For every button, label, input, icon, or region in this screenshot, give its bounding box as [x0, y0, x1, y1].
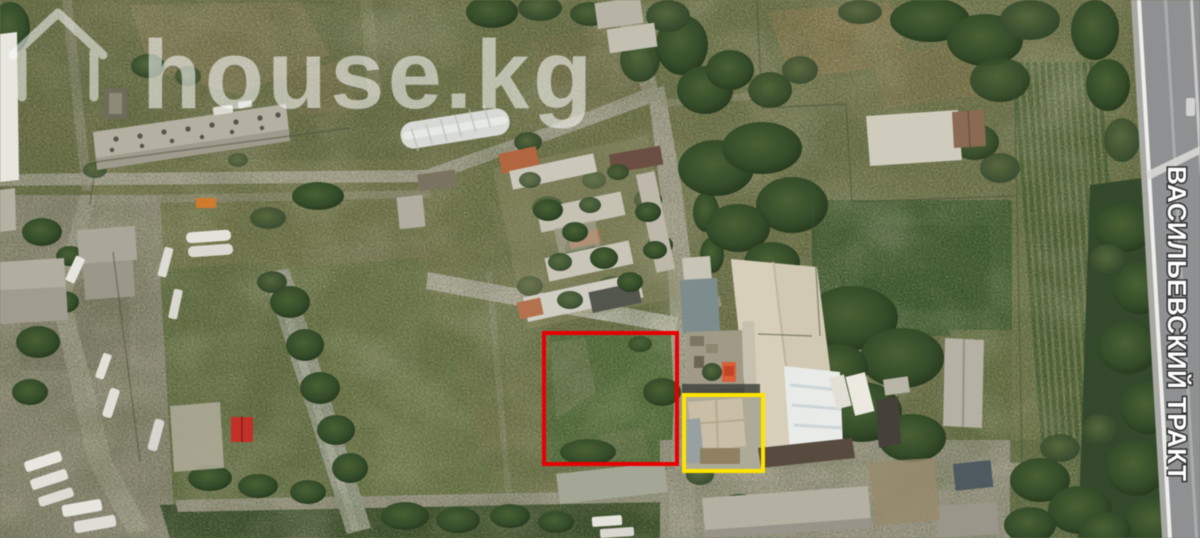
svg-text:ВАСИЛЬЕВСКИЙ ТРАКТ: ВАСИЛЬЕВСКИЙ ТРАКТ — [1162, 166, 1192, 482]
svg-text:house.kg: house.kg — [142, 20, 596, 129]
